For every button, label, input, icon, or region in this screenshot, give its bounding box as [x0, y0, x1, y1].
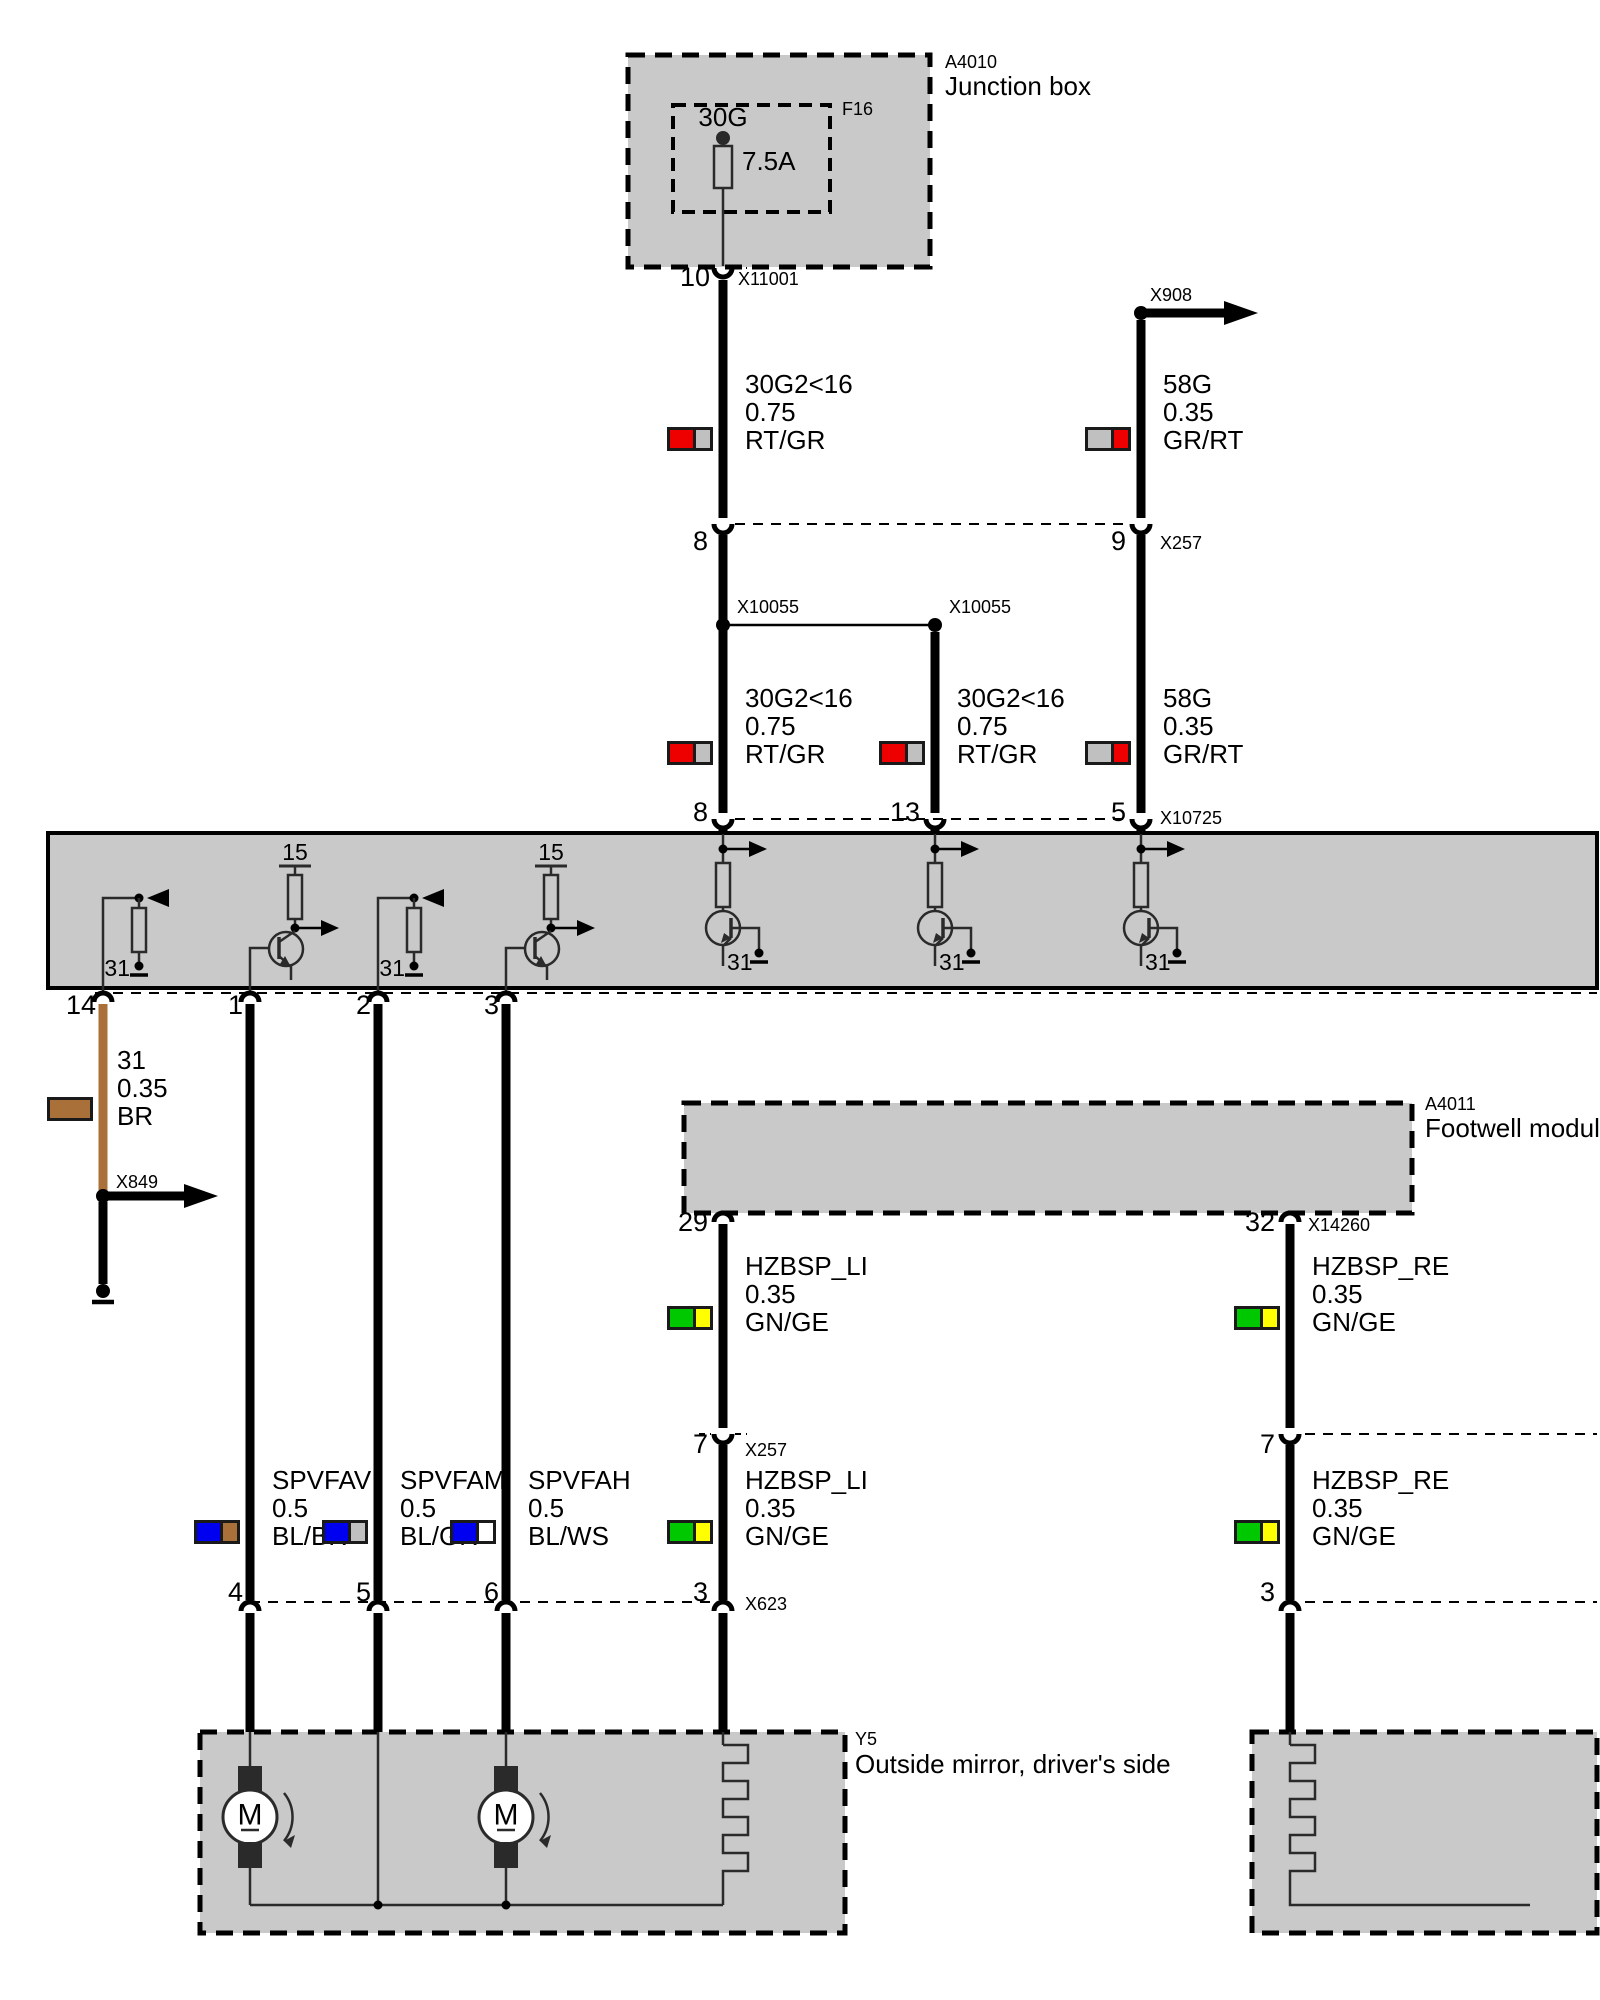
pin-7-right-label: 7 — [1225, 1430, 1275, 1458]
wire-swatch-hzbsp-li-lower — [667, 1520, 713, 1544]
splice-x10055 — [716, 618, 942, 632]
wire-label-30g2-top: 30G2<160.75RT/GR — [745, 370, 853, 454]
motor-letter-vertical: M — [238, 1801, 263, 1831]
wire-label-30g2-mid-left: 30G2<160.75RT/GR — [745, 684, 853, 768]
splice-x10055-left-label: X10055 — [737, 597, 799, 617]
wiring-diagram-page: 30G 7.5A F16 A4010 Junction box 10 X1100… — [0, 0, 1600, 2000]
connector-x257-mid — [699, 1434, 1597, 1443]
pin-4-label: 4 — [203, 1578, 243, 1606]
splice-x908-label: X908 — [1150, 285, 1192, 305]
connector-x623-label: X623 — [745, 1594, 787, 1614]
terminal-31-label-a: 31 — [95, 956, 130, 980]
connector-x257-top-label: X257 — [1160, 533, 1202, 553]
fuse-rating-label: 7.5A — [742, 147, 796, 175]
pin-8-label: 8 — [658, 527, 708, 555]
wire-swatch-30g2-top — [667, 427, 713, 451]
fuse-terminal-label: 30G — [698, 103, 747, 131]
footwell-module-code: A4011 — [1425, 1094, 1476, 1114]
pin-6-label: 6 — [459, 1578, 499, 1606]
mirror-driver-code: Y5 — [855, 1729, 877, 1749]
wire-swatch-30g2-mid-left — [667, 741, 713, 765]
connector-x14260-label: X14260 — [1308, 1215, 1370, 1235]
pin-29-label: 29 — [648, 1208, 708, 1236]
wire-swatch-ground-31 — [47, 1097, 93, 1121]
wire-swatch-58g-top — [1085, 427, 1131, 451]
pin-2-label: 2 — [331, 991, 371, 1019]
wire-label-ground-31: 310.35BR — [117, 1046, 168, 1130]
wire-swatch-30g2-mid-right — [879, 741, 925, 765]
footwell-module-title: Footwell module — [1425, 1114, 1600, 1142]
pin-5-label: 5 — [1076, 798, 1126, 826]
terminal-31-label-b: 31 — [370, 956, 405, 980]
wire-label-hzbsp-li-upper: HZBSP_LI0.35GN/GE — [745, 1252, 868, 1336]
junction-box-code: A4010 — [945, 52, 997, 72]
wire-swatch-hzbsp-re-upper — [1234, 1306, 1280, 1330]
wire-label-spvfah: SPVFAH0.5BL/WS — [528, 1466, 631, 1550]
pin-9-label: 9 — [1076, 527, 1126, 555]
wire-swatch-58g-mid — [1085, 741, 1131, 765]
pin-3-label: 3 — [459, 991, 499, 1019]
terminal-31-label-d: 31 — [939, 950, 971, 974]
pin-5b-label: 5 — [331, 1578, 371, 1606]
pin-3b-label: 3 — [668, 1578, 708, 1606]
terminal-31-label-e: 31 — [1145, 950, 1177, 974]
wire-label-hzbsp-re-upper: HZBSP_RE0.35GN/GE — [1312, 1252, 1449, 1336]
pin-7-left-label: 7 — [658, 1430, 708, 1458]
terminal-31-label-c: 31 — [727, 950, 759, 974]
splice-x849-label: X849 — [116, 1172, 158, 1192]
pin-32-label: 32 — [1215, 1208, 1275, 1236]
wire-label-58g-mid: 58G0.35GR/RT — [1163, 684, 1243, 768]
footwell-module-outline — [684, 1103, 1412, 1213]
connector-x623 — [241, 1602, 1597, 1611]
wire-label-hzbsp-li-lower: HZBSP_LI0.35GN/GE — [745, 1466, 868, 1550]
wire-swatch-hzbsp-re-lower — [1234, 1520, 1280, 1544]
wire-swatch-spvfah — [450, 1520, 496, 1544]
pin-10-label: 10 — [660, 263, 710, 291]
connector-x10725-label: X10725 — [1160, 808, 1222, 828]
splice-arrow-x849 — [92, 1184, 218, 1302]
pin-3-right-label: 3 — [1235, 1578, 1275, 1606]
wire-swatch-spvfam — [322, 1520, 368, 1544]
junction-box-title: Junction box — [945, 72, 1091, 100]
connector-x11001-label: X11001 — [738, 269, 799, 289]
splice-x10055-right-label: X10055 — [949, 597, 1011, 617]
connector-band-bottom — [94, 993, 1597, 1002]
wire-label-58g-top: 58G0.35GR/RT — [1163, 370, 1243, 454]
pin-8b-label: 8 — [658, 798, 708, 826]
pin-14-label: 14 — [56, 991, 96, 1019]
wire-label-hzbsp-re-lower: HZBSP_RE0.35GN/GE — [1312, 1466, 1449, 1550]
terminal-15-label-a: 15 — [282, 840, 308, 864]
fuse-id-label: F16 — [842, 99, 873, 119]
wire-label-30g2-mid-right: 30G2<160.75RT/GR — [957, 684, 1065, 768]
motor-letter-horizontal: M — [494, 1801, 519, 1831]
mirror-driver-title: Outside mirror, driver's side — [855, 1750, 1171, 1778]
connector-x257-mid-label: X257 — [745, 1440, 787, 1460]
pin-1-label: 1 — [203, 991, 243, 1019]
terminal-15-label-b: 15 — [538, 840, 564, 864]
pin-13-label: 13 — [860, 798, 920, 826]
wire-swatch-spvfav — [194, 1520, 240, 1544]
wire-swatch-hzbsp-li-upper — [667, 1306, 713, 1330]
